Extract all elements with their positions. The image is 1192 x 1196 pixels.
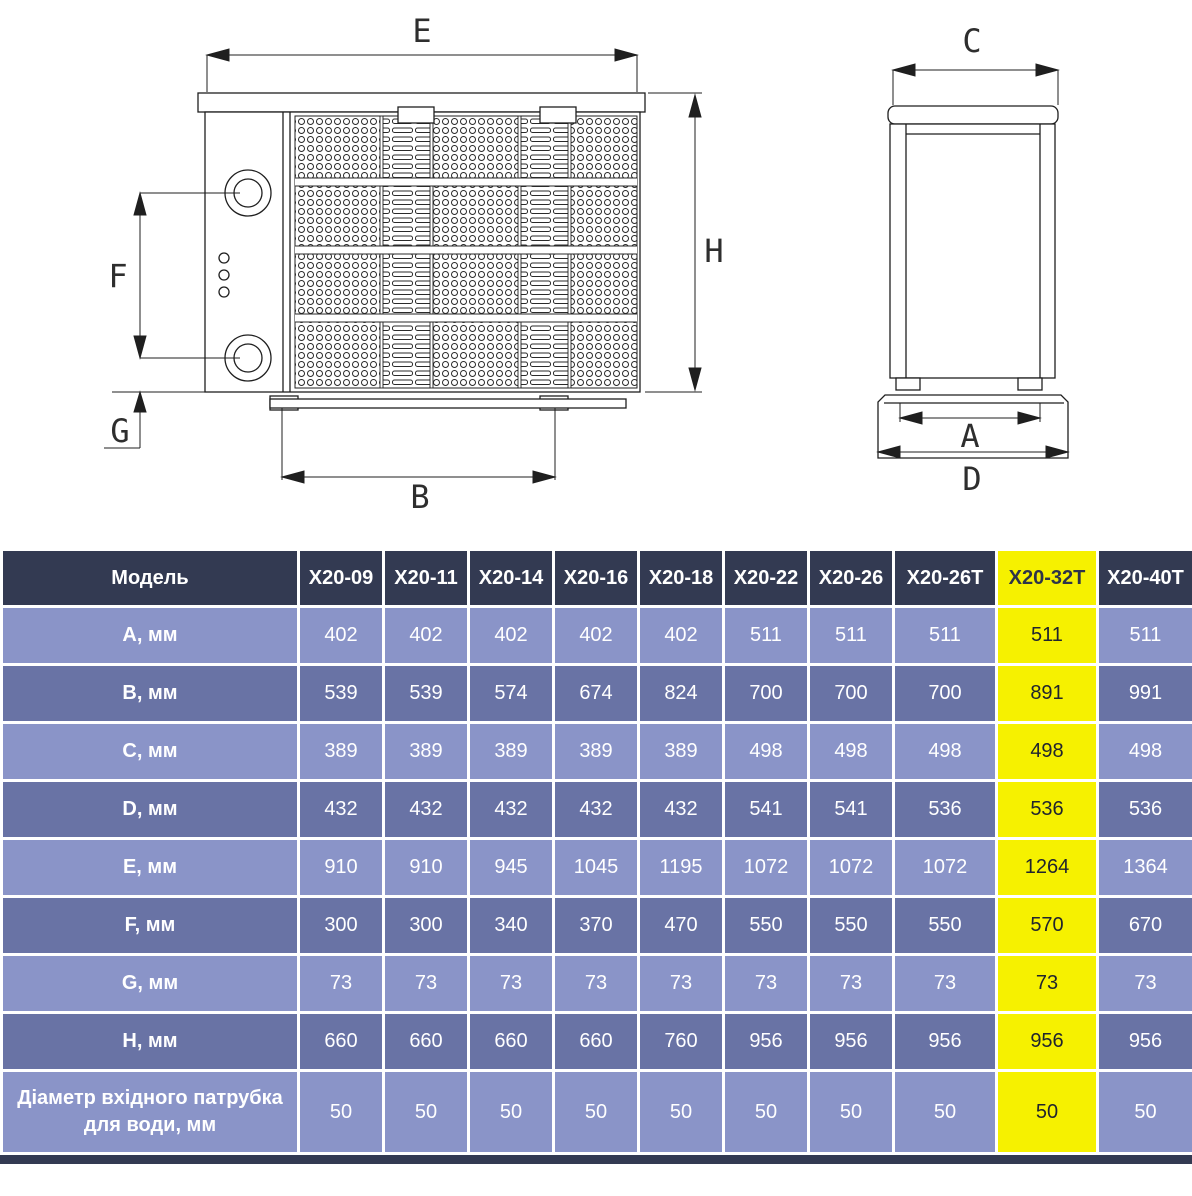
table-row: F, мм300300340370470550550550570670 (2, 897, 1192, 955)
value-cell: 432 (639, 781, 724, 839)
value-cell: 956 (894, 1013, 997, 1071)
value-cell: 1364 (1098, 839, 1192, 897)
value-cell: 73 (997, 955, 1098, 1013)
value-cell: 1045 (554, 839, 639, 897)
table-row: Діаметр вхідного патрубка для води, мм50… (2, 1071, 1192, 1154)
value-cell: 300 (299, 897, 384, 955)
dim-label-D: D (962, 460, 981, 498)
value-cell: 432 (299, 781, 384, 839)
value-cell: 50 (639, 1071, 724, 1154)
value-cell: 539 (384, 665, 469, 723)
row-label: C, мм (2, 723, 299, 781)
value-cell: 50 (997, 1071, 1098, 1154)
dim-label-B: B (410, 478, 429, 516)
value-cell: 700 (809, 665, 894, 723)
value-cell: 660 (554, 1013, 639, 1071)
value-cell: 945 (469, 839, 554, 897)
value-cell: 891 (997, 665, 1098, 723)
dim-label-H: H (704, 232, 723, 270)
value-cell: 389 (639, 723, 724, 781)
value-cell: 550 (724, 897, 809, 955)
value-cell: 498 (724, 723, 809, 781)
value-cell: 511 (894, 607, 997, 665)
value-cell: 498 (1098, 723, 1192, 781)
value-cell: 536 (894, 781, 997, 839)
col-header-X20-11: X20-11 (384, 550, 469, 607)
value-cell: 498 (997, 723, 1098, 781)
dim-label-G: G (110, 412, 129, 450)
col-header-X20-09: X20-09 (299, 550, 384, 607)
header-row: МодельX20-09X20-11X20-14X20-16X20-18X20-… (2, 550, 1192, 607)
model-column-header: Модель (2, 550, 299, 607)
heat-pump-dimension-drawing: E H F G B C A D (0, 0, 1192, 548)
value-cell: 402 (639, 607, 724, 665)
value-cell: 1072 (809, 839, 894, 897)
value-cell: 670 (1098, 897, 1192, 955)
value-cell: 539 (299, 665, 384, 723)
row-label: E, мм (2, 839, 299, 897)
value-cell: 300 (384, 897, 469, 955)
value-cell: 1072 (724, 839, 809, 897)
value-cell: 402 (554, 607, 639, 665)
value-cell: 1264 (997, 839, 1098, 897)
value-cell: 389 (299, 723, 384, 781)
value-cell: 550 (894, 897, 997, 955)
value-cell: 910 (299, 839, 384, 897)
product-dimensions-sheet: E H F G B C A D МодельX20-09X20-11X20-14… (0, 0, 1192, 1196)
value-cell: 760 (639, 1013, 724, 1071)
value-cell: 50 (894, 1071, 997, 1154)
col-header-X20-26: X20-26 (809, 550, 894, 607)
value-cell: 389 (554, 723, 639, 781)
table-row: D, мм432432432432432541541536536536 (2, 781, 1192, 839)
table-body: A, мм402402402402402511511511511511B, мм… (2, 607, 1192, 1154)
col-header-X20-26T: X20-26T (894, 550, 997, 607)
value-cell: 824 (639, 665, 724, 723)
value-cell: 570 (997, 897, 1098, 955)
value-cell: 73 (554, 955, 639, 1013)
row-label: B, мм (2, 665, 299, 723)
value-cell: 73 (384, 955, 469, 1013)
bottom-divider-bar (0, 1155, 1192, 1164)
value-cell: 511 (809, 607, 894, 665)
value-cell: 536 (1098, 781, 1192, 839)
row-label: F, мм (2, 897, 299, 955)
value-cell: 50 (1098, 1071, 1192, 1154)
value-cell: 389 (469, 723, 554, 781)
value-cell: 50 (299, 1071, 384, 1154)
value-cell: 1072 (894, 839, 997, 897)
value-cell: 660 (384, 1013, 469, 1071)
dimensions-table: МодельX20-09X20-11X20-14X20-16X20-18X20-… (0, 548, 1192, 1155)
value-cell: 498 (894, 723, 997, 781)
value-cell: 956 (1098, 1013, 1192, 1071)
value-cell: 73 (469, 955, 554, 1013)
value-cell: 73 (1098, 955, 1192, 1013)
value-cell: 73 (809, 955, 894, 1013)
table-row: B, мм539539574674824700700700891991 (2, 665, 1192, 723)
table-row: C, мм389389389389389498498498498498 (2, 723, 1192, 781)
value-cell: 511 (724, 607, 809, 665)
value-cell: 511 (997, 607, 1098, 665)
value-cell: 50 (554, 1071, 639, 1154)
table-row: E, мм91091094510451195107210721072126413… (2, 839, 1192, 897)
value-cell: 991 (1098, 665, 1192, 723)
value-cell: 956 (997, 1013, 1098, 1071)
row-label: A, мм (2, 607, 299, 665)
dim-label-F: F (108, 257, 127, 295)
front-view (198, 93, 645, 410)
value-cell: 574 (469, 665, 554, 723)
value-cell: 389 (384, 723, 469, 781)
value-cell: 511 (1098, 607, 1192, 665)
value-cell: 73 (639, 955, 724, 1013)
value-cell: 536 (997, 781, 1098, 839)
value-cell: 340 (469, 897, 554, 955)
value-cell: 700 (724, 665, 809, 723)
value-cell: 432 (469, 781, 554, 839)
value-cell: 73 (299, 955, 384, 1013)
value-cell: 50 (724, 1071, 809, 1154)
value-cell: 956 (724, 1013, 809, 1071)
dim-label-C: C (962, 22, 981, 60)
table-head: МодельX20-09X20-11X20-14X20-16X20-18X20-… (2, 550, 1192, 607)
value-cell: 660 (469, 1013, 554, 1071)
col-header-X20-16: X20-16 (554, 550, 639, 607)
value-cell: 660 (299, 1013, 384, 1071)
row-label: D, мм (2, 781, 299, 839)
value-cell: 370 (554, 897, 639, 955)
base-pallet (270, 396, 626, 410)
value-cell: 50 (469, 1071, 554, 1154)
value-cell: 73 (894, 955, 997, 1013)
value-cell: 73 (724, 955, 809, 1013)
value-cell: 550 (809, 897, 894, 955)
col-header-X20-22: X20-22 (724, 550, 809, 607)
value-cell: 498 (809, 723, 894, 781)
value-cell: 541 (809, 781, 894, 839)
value-cell: 956 (809, 1013, 894, 1071)
col-header-X20-32T: X20-32T (997, 550, 1098, 607)
col-header-X20-18: X20-18 (639, 550, 724, 607)
dim-label-A: A (960, 417, 979, 455)
value-cell: 402 (299, 607, 384, 665)
evaporator-grille (295, 116, 637, 388)
value-cell: 50 (809, 1071, 894, 1154)
value-cell: 674 (554, 665, 639, 723)
value-cell: 402 (384, 607, 469, 665)
value-cell: 1195 (639, 839, 724, 897)
table-row: G, мм73737373737373737373 (2, 955, 1192, 1013)
value-cell: 470 (639, 897, 724, 955)
value-cell: 432 (384, 781, 469, 839)
value-cell: 50 (384, 1071, 469, 1154)
value-cell: 541 (724, 781, 809, 839)
value-cell: 432 (554, 781, 639, 839)
dim-label-E: E (412, 12, 431, 50)
col-header-X20-14: X20-14 (469, 550, 554, 607)
value-cell: 700 (894, 665, 997, 723)
technical-drawing: E H F G B C A D (0, 0, 1192, 548)
value-cell: 402 (469, 607, 554, 665)
table-row: A, мм402402402402402511511511511511 (2, 607, 1192, 665)
col-header-X20-40T: X20-40T (1098, 550, 1192, 607)
table-row: H, мм660660660660760956956956956956 (2, 1013, 1192, 1071)
row-label: H, мм (2, 1013, 299, 1071)
value-cell: 910 (384, 839, 469, 897)
row-label: G, мм (2, 955, 299, 1013)
row-label: Діаметр вхідного патрубка для води, мм (2, 1071, 299, 1154)
